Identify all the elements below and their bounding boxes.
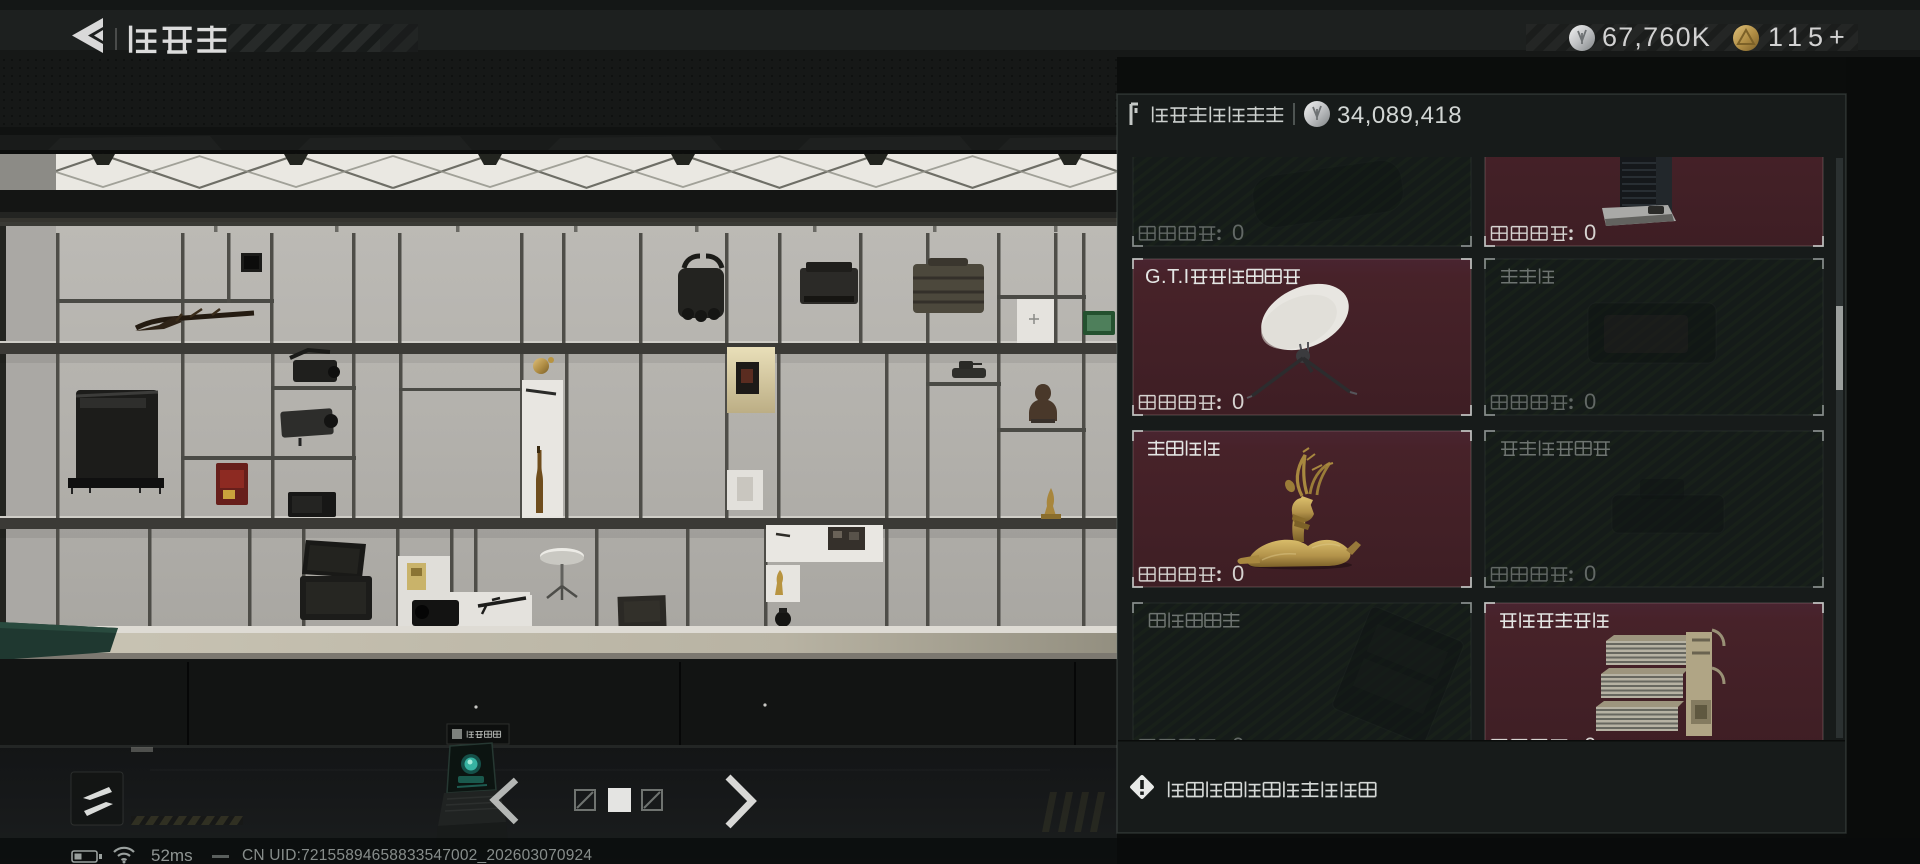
svg-text:0: 0 [1584, 561, 1596, 586]
svg-text:52ms: 52ms [151, 846, 193, 864]
svg-text:0: 0 [1584, 220, 1596, 245]
svg-text:0: 0 [1232, 220, 1244, 245]
svg-text:0: 0 [1584, 389, 1596, 414]
svg-text:115+: 115+ [1768, 22, 1851, 52]
svg-text:67,760K: 67,760K [1602, 22, 1711, 52]
svg-text:CN UID:72155894658833547002_20: CN UID:72155894658833547002_202603070924 [242, 847, 592, 864]
svg-text:0: 0 [1232, 561, 1244, 586]
svg-text:0: 0 [1232, 389, 1244, 414]
svg-text:G.T.I: G.T.I [1145, 266, 1190, 288]
svg-text:34,089,418: 34,089,418 [1337, 102, 1462, 129]
